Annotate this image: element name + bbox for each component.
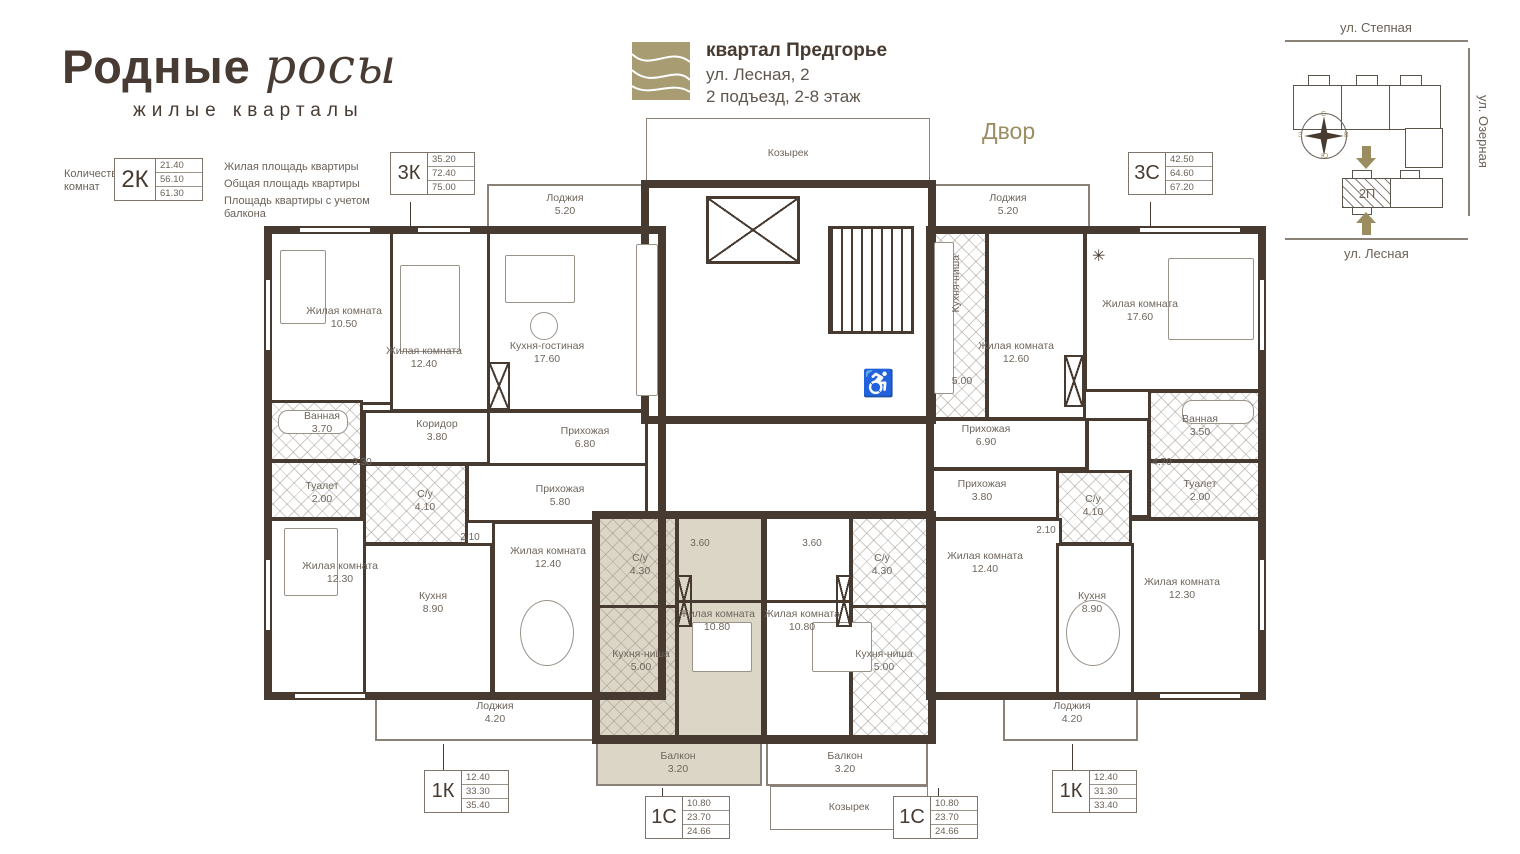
table-furniture — [530, 312, 558, 340]
leader-line — [938, 788, 939, 796]
tag-1s-right: 1С 10.8023.7024.66 — [893, 796, 978, 839]
legend-code: 2К — [115, 159, 155, 200]
dim-label: 2.10 — [1036, 525, 1055, 536]
brand-waves-icon — [632, 42, 690, 100]
yard-label: Двор — [982, 118, 1035, 145]
site-building-section — [1390, 178, 1443, 208]
street-bottom-label: ул. Лесная — [1344, 246, 1409, 261]
core-corridor — [645, 418, 932, 517]
room-label: Лоджия4.20 — [476, 700, 513, 725]
wardrobe-icon — [488, 362, 510, 410]
leader-line — [410, 202, 411, 228]
room-label: Лоджия4.20 — [1053, 700, 1090, 725]
leader-line — [443, 744, 444, 770]
canopy-top-label: Козырек — [647, 147, 929, 159]
room-label: С/у4.10 — [415, 488, 435, 513]
street-bottom-line — [1285, 238, 1468, 240]
room-kitchen-890-left — [363, 543, 493, 696]
legend-value: 61.30 — [156, 187, 202, 200]
room-label: Коридор3.80 — [416, 418, 457, 443]
street-top-label: ул. Степная — [1340, 20, 1412, 35]
room-label: Туалет2.00 — [1183, 478, 1216, 503]
tag-1k-left: 1К 12.4033.3035.40 — [424, 770, 509, 813]
window — [300, 226, 370, 234]
room-label: Жилая комната17.60 — [1102, 298, 1178, 323]
sofa-furniture — [505, 255, 575, 303]
window — [1258, 560, 1266, 630]
legend-value: 21.40 — [156, 159, 202, 173]
leader-line — [1150, 202, 1151, 228]
room-label-vertical: Кухня-ниша — [950, 255, 962, 313]
room-label: Ванная3.50 — [1182, 413, 1218, 438]
staircase — [828, 226, 914, 334]
window — [264, 280, 272, 350]
compass-e: В — [1344, 132, 1349, 139]
room-label: Жилая комната10.80 — [679, 608, 755, 633]
snowflake-icon: ✳ — [1092, 246, 1105, 266]
leader-line — [1072, 744, 1073, 770]
legend-desc-2: Общая площадь квартиры — [224, 178, 360, 191]
tag-3k: 3К 35.2072.4075.00 — [390, 152, 475, 195]
dim-label: 4.70 — [1152, 457, 1171, 468]
canopy-top: Козырек — [646, 118, 930, 186]
room-label: Прихожая3.80 — [958, 478, 1007, 503]
window — [1140, 226, 1240, 234]
site-current-section: 2П — [1342, 178, 1392, 208]
site-building-section — [1389, 85, 1441, 130]
room-label: Туалет2.00 — [305, 480, 338, 505]
room-label: Прихожая6.80 — [561, 425, 610, 450]
arrow-up-icon — [1356, 212, 1376, 223]
wardrobe-icon — [1064, 355, 1084, 407]
room-living-1240-1k-right — [930, 518, 1062, 696]
compass-s: Ю — [1321, 153, 1328, 160]
bed-furniture — [1168, 258, 1254, 340]
dim-label: 2.10 — [460, 532, 479, 543]
room-label: Жилая комната12.40 — [510, 545, 586, 570]
window — [1160, 692, 1240, 700]
site-building-section — [1405, 128, 1443, 168]
room-label: Кухня-гостиная17.60 — [510, 340, 584, 365]
room-label: Балкон3.20 — [660, 750, 695, 775]
compass-icon: С Ю З В — [1301, 113, 1347, 159]
logo: Родныеросы — [62, 38, 397, 95]
room-label: Прихожая6.90 — [962, 423, 1011, 448]
compass-n: С — [1321, 111, 1326, 118]
room-label: Жилая комната10.80 — [764, 608, 840, 633]
site-building-section — [1341, 85, 1391, 130]
address: ул. Лесная, 2 — [706, 65, 810, 85]
room-label: С/у4.10 — [1083, 493, 1103, 518]
room-label: Лоджия5.20 — [989, 192, 1026, 217]
compass-w: З — [1298, 132, 1302, 139]
dim-label: 3.60 — [802, 538, 821, 549]
kitchen-counter — [636, 244, 658, 396]
room-label: Лоджия5.20 — [546, 192, 583, 217]
room-label: Жилая комната12.60 — [978, 340, 1054, 365]
site-block-label: 2П — [1359, 186, 1376, 201]
window — [295, 692, 365, 700]
room-label: Кухня-ниша5.00 — [855, 648, 913, 673]
room-label: Кухня8.90 — [1078, 590, 1106, 615]
leader-line — [662, 788, 663, 796]
legend-desc-3: Площадь квартиры с учетом балкона — [224, 195, 399, 220]
room-label: Кухня8.90 — [419, 590, 447, 615]
street-right-label: ул. Озерная — [1476, 95, 1491, 168]
table-furniture — [520, 600, 574, 666]
room-label: Жилая комната12.40 — [947, 550, 1023, 575]
window — [418, 226, 470, 234]
arrow-down-icon — [1362, 146, 1371, 158]
dim-label: 3.30 — [352, 457, 371, 468]
wheelchair-icon: ♿ — [862, 368, 894, 399]
logo-subtitle: жилые кварталы — [133, 100, 364, 122]
room-label: Жилая комната10.50 — [306, 305, 382, 330]
quarter-title: квартал Предгорье — [706, 40, 887, 62]
tag-3s: 3С 42.5064.6067.20 — [1128, 152, 1213, 195]
legend-value: 56.10 — [156, 173, 202, 187]
dim-label: 3.60 — [690, 538, 709, 549]
window — [264, 560, 272, 630]
arrow-up-icon — [1362, 223, 1371, 235]
room-label: Ванная3.70 — [304, 410, 340, 435]
room-label: Жилая комната12.30 — [302, 560, 378, 585]
entrance-floors: 2 подъезд, 2-8 этаж — [706, 87, 861, 107]
tag-1s-left: 1С 10.8023.7024.66 — [645, 796, 730, 839]
room-label: Жилая комната12.30 — [1144, 576, 1220, 601]
logo-main-text: Родные — [62, 40, 251, 93]
legend-desc-1: Жилая площадь квартиры — [224, 161, 359, 174]
street-top-line — [1285, 40, 1468, 42]
room-label: Балкон3.20 — [827, 750, 862, 775]
room-label: С/у4.30 — [872, 552, 892, 577]
legend-tag-2k: 2К 21.40 56.10 61.30 — [114, 158, 203, 201]
elevator-shaft — [706, 196, 800, 264]
arrow-down-icon — [1356, 158, 1376, 169]
street-right-line — [1468, 48, 1470, 216]
room-label: 5.00 — [952, 375, 972, 387]
page: { "logo": {"title_main": "Родные", "titl… — [0, 0, 1520, 854]
window — [1258, 280, 1266, 350]
room-label: С/у4.30 — [630, 552, 650, 577]
logo-script-text: росы — [265, 38, 397, 95]
bed-furniture — [400, 265, 460, 352]
room-label: Прихожая5.80 — [536, 483, 585, 508]
room-label: Кухня-ниша5.00 — [612, 648, 670, 673]
room-label: Жилая комната12.40 — [386, 345, 462, 370]
tag-1k-right: 1К 12.4031.3033.40 — [1052, 770, 1137, 813]
